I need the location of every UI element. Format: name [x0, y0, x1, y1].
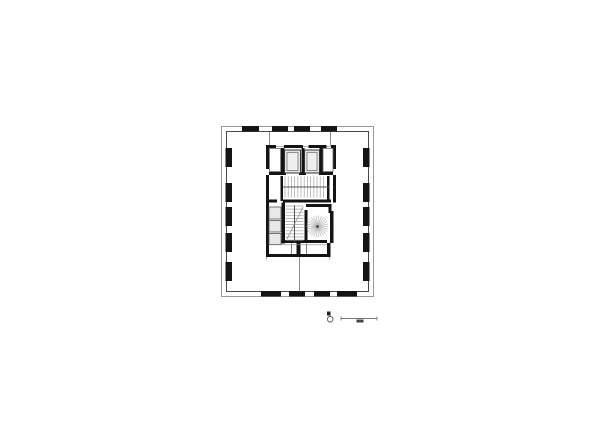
column-left [226, 233, 233, 252]
floor-plan-drawing [0, 0, 600, 424]
column-right [363, 183, 370, 202]
elevator-lobby-wall [269, 172, 286, 175]
core-west-wall [266, 145, 269, 169]
column-top [272, 126, 288, 132]
spiral-room-wall-top [306, 204, 332, 207]
north-arrow [327, 312, 333, 323]
scale-bar [341, 317, 377, 323]
column-top [242, 126, 259, 132]
column-bottom [337, 291, 357, 297]
core-mid-wall [283, 200, 331, 203]
core-top-wall [284, 145, 303, 148]
elevator-car-a [287, 153, 298, 171]
scale-bar-label-mark [357, 320, 364, 323]
elevator-shaft-wall [281, 148, 285, 174]
elevator-car-b [307, 153, 317, 171]
shaft-cell [269, 221, 281, 233]
north-arrow-ring [327, 316, 333, 322]
core-east-wall [333, 145, 336, 169]
column-bottom [261, 291, 281, 297]
elevator-lobby-wall [319, 172, 333, 175]
core-top-wall [309, 145, 327, 148]
stairwell-wall [281, 176, 284, 201]
side-slot-east [323, 149, 333, 172]
elevator-shaft-wall [320, 148, 324, 174]
column-bottom [289, 291, 305, 297]
column-top [294, 126, 310, 132]
column-right [363, 207, 370, 226]
service-band-wall-bottom [266, 254, 330, 257]
core-west-wall [266, 175, 269, 203]
column-right [363, 148, 370, 167]
shaft-cell [269, 207, 281, 219]
column-top [321, 126, 337, 132]
column-right [363, 262, 370, 281]
stairwell-wall [327, 176, 330, 201]
column-left [226, 183, 233, 202]
shaft-cells-wall [282, 203, 286, 244]
spiral-stair-newel [316, 225, 319, 228]
column-left [226, 262, 233, 281]
column-right [363, 233, 370, 252]
core-mid-wall [334, 200, 337, 203]
column-left [226, 207, 233, 226]
core-mid-wall [266, 200, 277, 203]
column-left [226, 148, 233, 167]
drawing-sheet [0, 0, 600, 424]
north-arrow-flag [327, 312, 331, 316]
core-east-wall [333, 175, 336, 203]
spiral-stair [307, 216, 329, 238]
core-west-wall-lower [266, 203, 269, 244]
spiral-room-wall-east [330, 211, 334, 243]
shaft-cell [269, 234, 281, 245]
column-bottom [314, 291, 330, 297]
side-slot-west [270, 149, 281, 172]
